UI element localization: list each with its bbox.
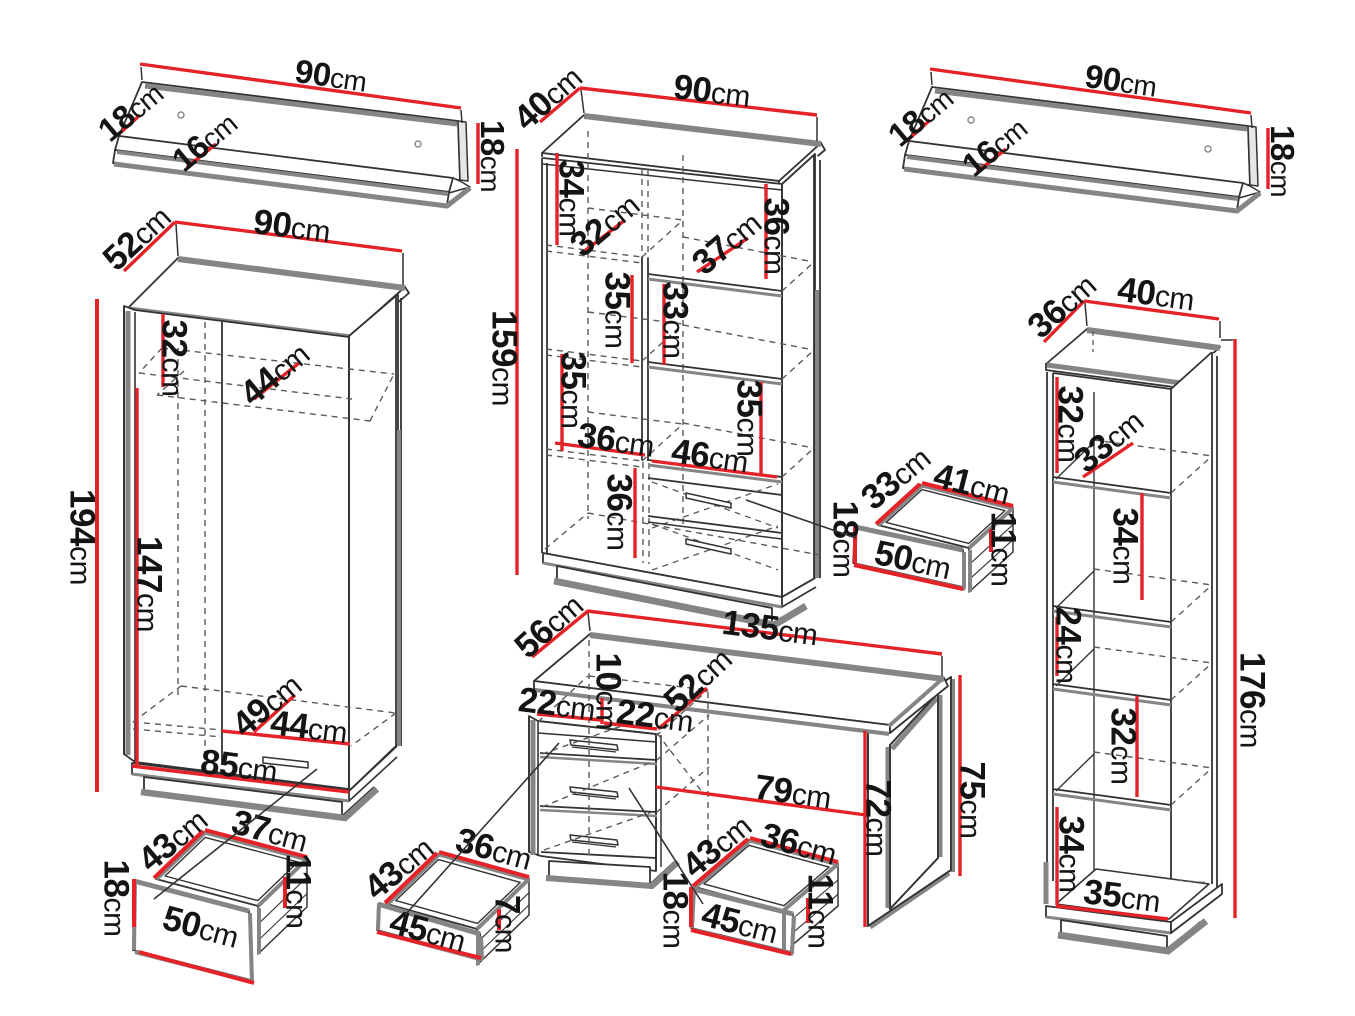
svg-text:35cm: 35cm xyxy=(597,272,636,349)
svg-text:24cm: 24cm xyxy=(1048,607,1087,684)
svg-text:75cm: 75cm xyxy=(952,762,991,839)
svg-text:34cm: 34cm xyxy=(1105,508,1144,585)
svg-text:18cm: 18cm xyxy=(825,501,864,578)
svg-text:72cm: 72cm xyxy=(858,780,897,857)
svg-text:18cm: 18cm xyxy=(1264,125,1301,197)
svg-text:7cm: 7cm xyxy=(487,895,526,953)
svg-text:32cm: 32cm xyxy=(1103,708,1142,785)
svg-text:36cm: 36cm xyxy=(599,474,638,551)
svg-text:36cm: 36cm xyxy=(756,198,795,275)
svg-text:11cm: 11cm xyxy=(983,512,1022,587)
svg-text:11cm: 11cm xyxy=(278,854,317,929)
svg-text:32cm: 32cm xyxy=(154,320,193,397)
svg-text:147cm: 147cm xyxy=(129,536,168,632)
svg-text:18cm: 18cm xyxy=(474,120,511,192)
svg-text:194cm: 194cm xyxy=(62,489,101,585)
svg-text:18cm: 18cm xyxy=(96,860,135,937)
svg-text:176cm: 176cm xyxy=(1232,652,1271,748)
svg-text:159cm: 159cm xyxy=(484,310,523,406)
svg-text:11cm: 11cm xyxy=(800,874,839,949)
svg-text:33cm: 33cm xyxy=(655,282,694,359)
svg-text:18cm: 18cm xyxy=(655,872,694,949)
svg-text:35cm: 35cm xyxy=(729,380,768,457)
